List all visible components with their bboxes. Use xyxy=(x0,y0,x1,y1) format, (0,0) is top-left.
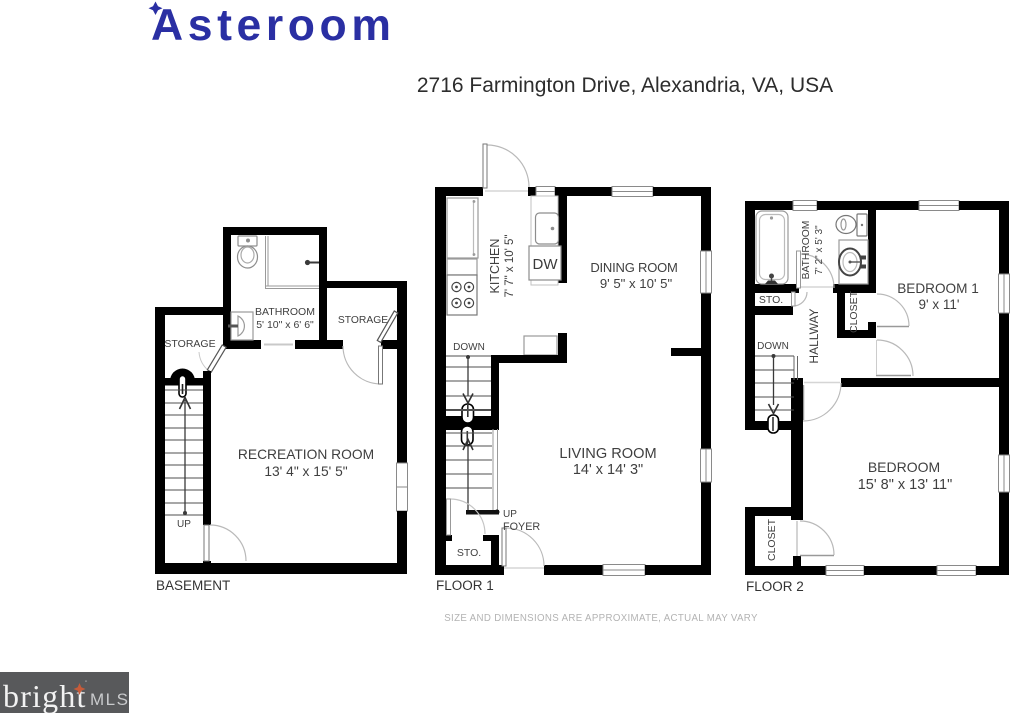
svg-text:CLOSET: CLOSET xyxy=(848,290,860,333)
svg-text:DOWN: DOWN xyxy=(757,341,789,352)
svg-text:13' 4" x 15' 5": 13' 4" x 15' 5" xyxy=(264,464,347,479)
svg-text:BASEMENT: BASEMENT xyxy=(156,578,230,593)
svg-text:14' x 14' 3": 14' x 14' 3" xyxy=(573,462,643,478)
svg-text:7' 7" x 10' 5": 7' 7" x 10' 5" xyxy=(504,234,516,297)
svg-text:BATHROOM: BATHROOM xyxy=(255,306,315,318)
svg-text:UP: UP xyxy=(177,519,191,530)
svg-text:MLS: MLS xyxy=(90,690,129,709)
svg-text:bright: bright xyxy=(3,678,87,713)
svg-text:RECREATION ROOM: RECREATION ROOM xyxy=(238,447,374,462)
svg-text:UP: UP xyxy=(503,509,517,520)
svg-text:STORAGE: STORAGE xyxy=(338,315,388,326)
svg-text:DW: DW xyxy=(533,256,559,273)
svg-text:7' 2" x 5' 3": 7' 2" x 5' 3" xyxy=(814,225,825,275)
svg-text:BEDROOM: BEDROOM xyxy=(868,459,940,475)
svg-text:BEDROOM 1: BEDROOM 1 xyxy=(897,281,979,296)
svg-text:DOWN: DOWN xyxy=(453,342,485,353)
svg-text:Asteroom: Asteroom xyxy=(151,1,396,50)
svg-text:9' x 11': 9' x 11' xyxy=(919,297,960,312)
svg-text:CLOSET: CLOSET xyxy=(766,518,778,561)
svg-text:FLOOR 1: FLOOR 1 xyxy=(436,578,494,593)
svg-text:5' 10" x 6' 6": 5' 10" x 6' 6" xyxy=(256,319,314,331)
svg-text:FLOOR 2: FLOOR 2 xyxy=(746,579,804,594)
svg-text:FOYER: FOYER xyxy=(503,521,540,533)
svg-text:KITCHEN: KITCHEN xyxy=(488,239,502,294)
svg-text:DINING ROOM: DINING ROOM xyxy=(590,260,677,275)
svg-text:2716 Farmington Drive, Alexand: 2716 Farmington Drive, Alexandria, VA, U… xyxy=(417,74,833,97)
svg-text:STO.: STO. xyxy=(457,547,481,559)
svg-text:BATHROOM: BATHROOM xyxy=(801,221,812,280)
svg-text:STORAGE: STORAGE xyxy=(164,338,215,350)
svg-text:'': '' xyxy=(85,681,87,687)
svg-text:9' 5" x 10' 5": 9' 5" x 10' 5" xyxy=(600,276,673,291)
svg-text:15' 8" x 13' 11": 15' 8" x 13' 11" xyxy=(858,477,953,493)
svg-text:LIVING ROOM: LIVING ROOM xyxy=(559,446,656,462)
svg-text:STO.: STO. xyxy=(759,294,783,306)
svg-text:HALLWAY: HALLWAY xyxy=(807,308,821,363)
svg-text:SIZE AND DIMENSIONS ARE APPROX: SIZE AND DIMENSIONS ARE APPROXIMATE, ACT… xyxy=(444,613,758,624)
